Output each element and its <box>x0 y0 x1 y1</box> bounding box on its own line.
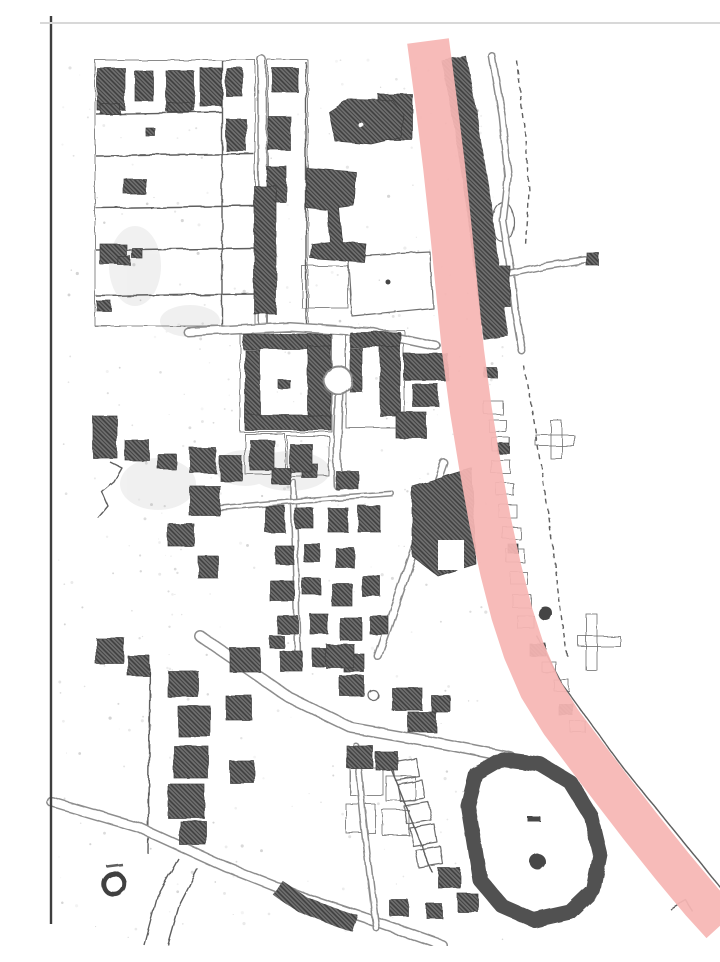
noise-dot <box>135 928 138 931</box>
noise-dot <box>277 391 278 392</box>
noise-dot <box>209 362 210 363</box>
noise-dot <box>392 917 394 919</box>
noise-dot <box>142 636 143 637</box>
building <box>146 128 155 136</box>
noise-dot <box>182 445 184 447</box>
building <box>426 904 442 918</box>
noise-dot <box>386 418 388 420</box>
noise-dot <box>150 503 153 506</box>
noise-dot <box>201 322 203 324</box>
noise-dot <box>301 238 303 240</box>
noise-dot <box>131 424 133 426</box>
map-canvas <box>40 16 720 946</box>
noise-dot <box>404 489 406 491</box>
noise-dot <box>84 686 86 688</box>
noise-dot <box>297 113 299 115</box>
noise-dot <box>177 202 180 205</box>
building <box>412 384 438 406</box>
building <box>408 712 436 732</box>
noise-dot <box>213 422 215 424</box>
noise-dot <box>289 302 290 303</box>
noise-dot <box>371 647 374 650</box>
building <box>336 548 354 568</box>
noise-dot <box>398 314 401 317</box>
noise-dot <box>195 127 197 129</box>
noise-dot <box>331 271 334 274</box>
noise-dot <box>243 290 246 293</box>
noise-dot <box>94 477 96 479</box>
noise-dot <box>187 698 190 701</box>
building <box>198 556 218 578</box>
noise-dot <box>63 583 65 585</box>
noise-dot <box>199 337 202 340</box>
noise-dot <box>169 757 171 759</box>
noise-dot <box>206 654 208 656</box>
noise-dot <box>62 106 64 108</box>
noise-dot <box>128 937 129 938</box>
boundary-line <box>96 206 254 208</box>
noise-dot <box>329 133 330 134</box>
noise-dot <box>427 842 428 843</box>
noise-dot <box>201 420 204 423</box>
noise-dot <box>169 654 170 655</box>
noise-dot <box>480 115 482 117</box>
noise-dot <box>276 444 279 447</box>
building <box>174 746 208 778</box>
fortified-enclosure <box>468 759 600 920</box>
building <box>380 346 400 416</box>
parcel-outline <box>551 421 562 459</box>
noise-dot <box>150 848 152 850</box>
noise-dot <box>171 593 174 596</box>
noise-dot <box>128 729 131 732</box>
building <box>340 676 364 696</box>
noise-dot <box>75 904 78 907</box>
ring-symbol-bar <box>107 865 123 867</box>
noise-dot <box>440 831 442 833</box>
building <box>118 256 130 265</box>
riverside-dot <box>538 606 552 620</box>
noise-dot <box>61 901 64 904</box>
boundary-line <box>386 756 432 872</box>
building <box>295 508 313 528</box>
noise-dot <box>132 263 135 266</box>
building <box>254 186 276 314</box>
noise-dot <box>444 777 447 780</box>
noise-dot <box>337 504 339 506</box>
noise-dot <box>140 570 142 572</box>
noise-dot <box>455 791 457 793</box>
noise-dot <box>78 752 81 755</box>
building <box>347 746 373 768</box>
noise-dot <box>140 299 142 301</box>
noise-dot <box>437 414 438 415</box>
noise-dot <box>287 485 290 488</box>
noise-dot <box>181 614 182 615</box>
sw-lane <box>144 858 178 945</box>
noise-dot <box>234 288 236 290</box>
parcel-outline <box>398 780 425 802</box>
noise-dot <box>223 892 226 895</box>
noise-dot <box>300 473 302 475</box>
building <box>200 68 222 106</box>
building <box>290 444 312 472</box>
building <box>396 412 426 438</box>
building <box>245 350 260 418</box>
building <box>180 821 206 845</box>
large-hall-building <box>329 99 404 144</box>
noise-dot <box>343 421 344 422</box>
building <box>230 761 254 783</box>
noise-dot <box>184 394 185 395</box>
noise-dot <box>60 877 61 878</box>
noise-dot <box>229 395 231 397</box>
noise-dot <box>168 626 170 628</box>
noise-dot <box>144 517 147 520</box>
noise-dot <box>469 611 471 613</box>
noise-dot <box>223 73 225 75</box>
parcel-outline <box>350 768 383 795</box>
noise-dot <box>233 914 234 915</box>
noise-dot <box>446 770 448 772</box>
noise-dot <box>66 753 67 754</box>
building <box>96 638 124 664</box>
building <box>332 584 352 606</box>
noise-dot <box>346 166 349 169</box>
noise-dot <box>337 274 339 276</box>
boundary-line <box>96 154 254 156</box>
noise-dot <box>253 756 256 759</box>
noise-dot <box>412 184 414 186</box>
building <box>376 752 398 770</box>
building <box>250 440 274 470</box>
building <box>370 616 388 634</box>
noise-dot <box>220 626 221 627</box>
noise-dot <box>58 681 61 684</box>
noise-dot <box>142 716 144 718</box>
building <box>392 688 422 710</box>
building <box>190 486 220 516</box>
noise-dot <box>288 218 289 219</box>
building <box>168 784 204 818</box>
noise-dot <box>396 675 399 678</box>
building <box>280 651 302 671</box>
noise-dot <box>261 495 263 497</box>
noise-dot <box>204 304 206 306</box>
noise-dot <box>102 124 105 127</box>
noise-dot <box>68 381 70 383</box>
noise-dot <box>407 327 408 328</box>
building <box>190 448 216 473</box>
building <box>178 706 210 736</box>
noise-dot <box>169 414 170 415</box>
noise-dot <box>96 197 98 199</box>
noise-dot <box>270 157 271 158</box>
noise-dot <box>174 594 175 595</box>
noise-dot <box>239 542 242 545</box>
noise-dot <box>366 226 369 229</box>
noise-dot <box>391 577 394 580</box>
noise-dot <box>166 331 168 333</box>
building <box>438 868 460 888</box>
building <box>310 614 328 634</box>
building <box>226 68 242 96</box>
noise-dot <box>307 880 309 882</box>
noise-dot <box>109 717 112 720</box>
noise-dot <box>375 377 378 380</box>
noise-dot <box>240 737 242 739</box>
noise-dot <box>121 213 123 215</box>
noise-dot <box>285 352 286 353</box>
noise-dot <box>429 249 430 250</box>
noise-dot <box>182 923 184 925</box>
noise-dot <box>76 272 79 275</box>
noise-dot <box>354 591 355 592</box>
building <box>168 524 194 546</box>
ring-well-symbol <box>104 874 125 895</box>
noise-dot <box>411 631 413 633</box>
noise-dot <box>123 765 125 767</box>
noise-dot <box>181 219 184 222</box>
noise-dot <box>403 247 406 250</box>
noise-dot <box>287 642 289 644</box>
wiggly-boundary <box>98 462 122 518</box>
fort-center-dot <box>530 854 546 870</box>
noise-dot <box>193 440 196 443</box>
noise-dot <box>89 843 91 845</box>
noise-dot <box>392 315 395 318</box>
noise-dot <box>103 832 106 835</box>
noise-dot <box>65 492 68 495</box>
parcel-outline <box>302 266 348 308</box>
noise-dot <box>335 60 338 63</box>
building <box>326 644 354 668</box>
noise-dot <box>462 791 464 793</box>
building <box>168 102 192 112</box>
noise-dot <box>484 611 487 614</box>
noise-dot <box>283 487 286 490</box>
noise-dot <box>179 283 181 285</box>
noise-dot <box>64 623 66 625</box>
noise-dot <box>118 404 120 406</box>
noise-dot <box>341 83 344 86</box>
noise-dot <box>87 116 89 118</box>
noise-dot <box>164 505 166 507</box>
noise-dot <box>228 378 230 380</box>
noise-dot <box>328 459 331 462</box>
noise-dot <box>455 862 457 864</box>
noise-dot <box>377 802 380 805</box>
noise-dot <box>68 66 71 69</box>
noise-dot <box>419 478 420 479</box>
noise-dot <box>387 93 388 94</box>
noise-dot <box>234 807 237 810</box>
noise-dot <box>309 793 310 794</box>
noise-dot <box>145 462 148 465</box>
noise-dot <box>249 143 250 144</box>
noise-dot <box>169 668 172 671</box>
courtyard-patch <box>438 540 464 570</box>
noise-dot <box>293 401 294 402</box>
building <box>135 71 153 101</box>
noise-dot <box>441 723 442 724</box>
noise-dot <box>106 536 108 538</box>
noise-dot <box>141 719 144 722</box>
noise-dot <box>68 293 71 296</box>
noise-dot <box>345 930 347 932</box>
noise-dot <box>358 323 359 324</box>
noise-dot <box>112 572 114 574</box>
noise-dot <box>328 580 330 582</box>
noise-dot <box>286 286 289 289</box>
noise-dot <box>190 886 191 887</box>
noise-dot <box>165 555 166 556</box>
noise-dot <box>58 559 59 560</box>
noise-dot <box>403 88 405 90</box>
noise-dot <box>491 362 494 365</box>
noise-dot <box>300 440 302 442</box>
noise-dot <box>212 822 214 824</box>
noise-dot <box>158 538 159 539</box>
building <box>336 471 358 489</box>
building <box>245 415 331 430</box>
noise-dot <box>433 409 435 411</box>
noise-dot <box>371 566 372 567</box>
noise-dot <box>139 554 141 556</box>
noise-dot <box>81 606 83 608</box>
noise-dot <box>409 756 412 759</box>
noise-dot <box>387 195 390 198</box>
noise-dot <box>210 593 211 594</box>
noise-dot <box>380 87 381 88</box>
parcel-outline <box>536 435 574 446</box>
building <box>128 656 150 676</box>
noise-dot <box>268 913 271 916</box>
noise-dot <box>64 798 66 800</box>
noise-dot <box>241 911 244 914</box>
noise-dot <box>214 881 216 883</box>
noise-dot <box>332 765 334 767</box>
noise-dot <box>120 137 121 138</box>
noise-dot <box>103 222 105 224</box>
building <box>278 380 290 388</box>
noise-dot <box>62 720 65 723</box>
noise-dot <box>174 211 176 213</box>
noise-dot <box>201 157 203 159</box>
noise-dot <box>95 926 96 927</box>
building <box>390 900 408 916</box>
noise-dot <box>131 610 133 612</box>
noise-dot <box>417 250 419 252</box>
noise-dot <box>364 503 366 505</box>
noise-dot <box>63 443 65 445</box>
white-patches <box>438 540 464 570</box>
building <box>220 456 242 481</box>
noise-dot <box>158 541 161 544</box>
noise-dot <box>246 544 249 547</box>
noise-dot <box>452 434 453 435</box>
noise-dot <box>188 291 189 292</box>
noise-dot <box>253 567 255 569</box>
noise-dot <box>277 709 280 712</box>
noise-dot <box>384 849 385 850</box>
noise-dot <box>176 890 179 893</box>
building <box>226 696 252 720</box>
noise-dot <box>490 378 493 381</box>
noise-dot <box>161 512 162 513</box>
noise-dot <box>153 197 154 198</box>
noise-dot <box>138 637 140 639</box>
noise-dot <box>447 685 450 688</box>
noise-dot <box>332 775 334 777</box>
building <box>270 581 294 601</box>
sw-lane <box>168 869 198 945</box>
noise-dot <box>381 449 384 452</box>
noise-dot <box>476 700 478 702</box>
noise-dot <box>58 856 60 858</box>
noise-dot <box>501 346 503 348</box>
noise-dot <box>229 345 230 346</box>
noise-dot <box>260 849 263 852</box>
noise-dot <box>73 155 75 157</box>
noise-dot <box>79 74 80 75</box>
noise-dot <box>290 717 291 718</box>
noise-dot <box>416 237 417 238</box>
noise-dot <box>170 555 171 556</box>
noise-dot <box>146 203 149 206</box>
noise-dot <box>411 147 413 149</box>
noise-dot <box>379 280 380 281</box>
noise-dot <box>480 126 482 128</box>
noise-dot <box>404 546 405 547</box>
building <box>168 671 198 697</box>
noise-dot <box>502 355 504 357</box>
noise-dot <box>174 568 177 571</box>
noise-dot <box>348 835 351 838</box>
noise-dot <box>241 844 244 847</box>
noise-dot <box>159 371 162 374</box>
noise-dot <box>433 315 434 316</box>
building <box>226 119 246 151</box>
building <box>278 616 298 634</box>
building <box>270 636 284 648</box>
noise-dot <box>199 348 201 350</box>
parcel-outline <box>578 636 620 646</box>
noise-dot <box>172 669 173 670</box>
parcel-outline <box>586 614 597 670</box>
building <box>124 179 146 194</box>
noise-dot <box>242 922 245 925</box>
noise-dot <box>158 573 161 576</box>
noise-dot <box>502 939 504 941</box>
noise-dot <box>132 164 134 166</box>
building <box>587 253 599 266</box>
noise-dot <box>292 806 293 807</box>
noise-dot <box>119 728 120 729</box>
noise-dot <box>129 545 130 546</box>
building-courtyard-dot <box>359 123 364 128</box>
noise-dot <box>80 823 82 825</box>
noise-dot <box>225 845 228 848</box>
noise-dot <box>60 692 62 694</box>
noise-dot <box>119 367 121 369</box>
noise-dot <box>489 384 491 386</box>
noise-dot <box>447 819 449 821</box>
noise-dot <box>395 78 398 81</box>
noise-dot <box>315 284 317 286</box>
noise-dot <box>300 393 302 395</box>
building <box>265 506 285 532</box>
